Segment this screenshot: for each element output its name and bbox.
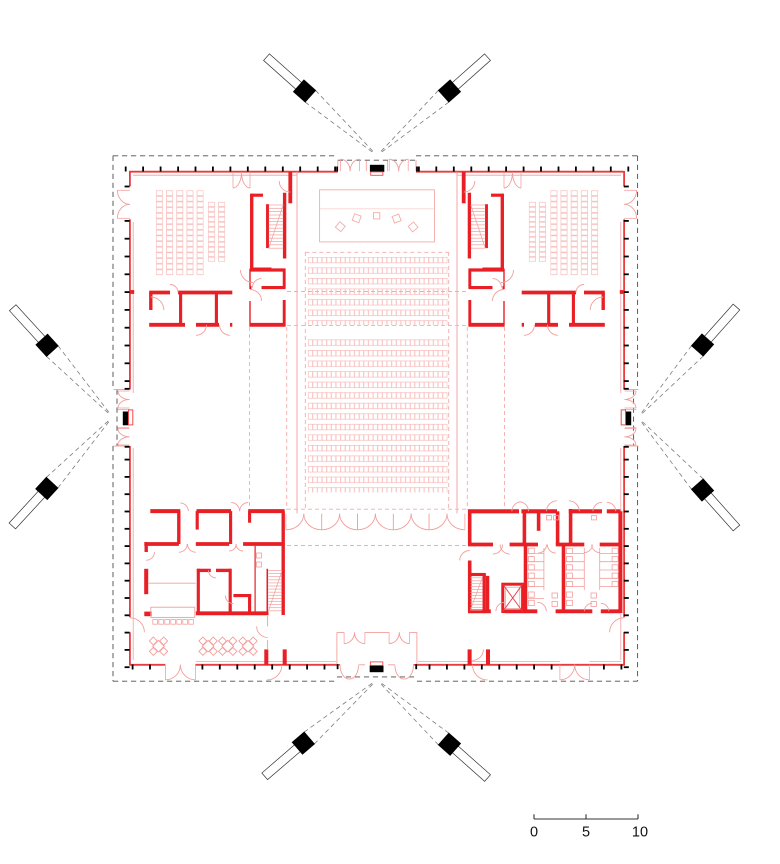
svg-text:10: 10 — [632, 825, 648, 841]
svg-text:5: 5 — [582, 825, 590, 841]
svg-text:0: 0 — [530, 825, 538, 841]
